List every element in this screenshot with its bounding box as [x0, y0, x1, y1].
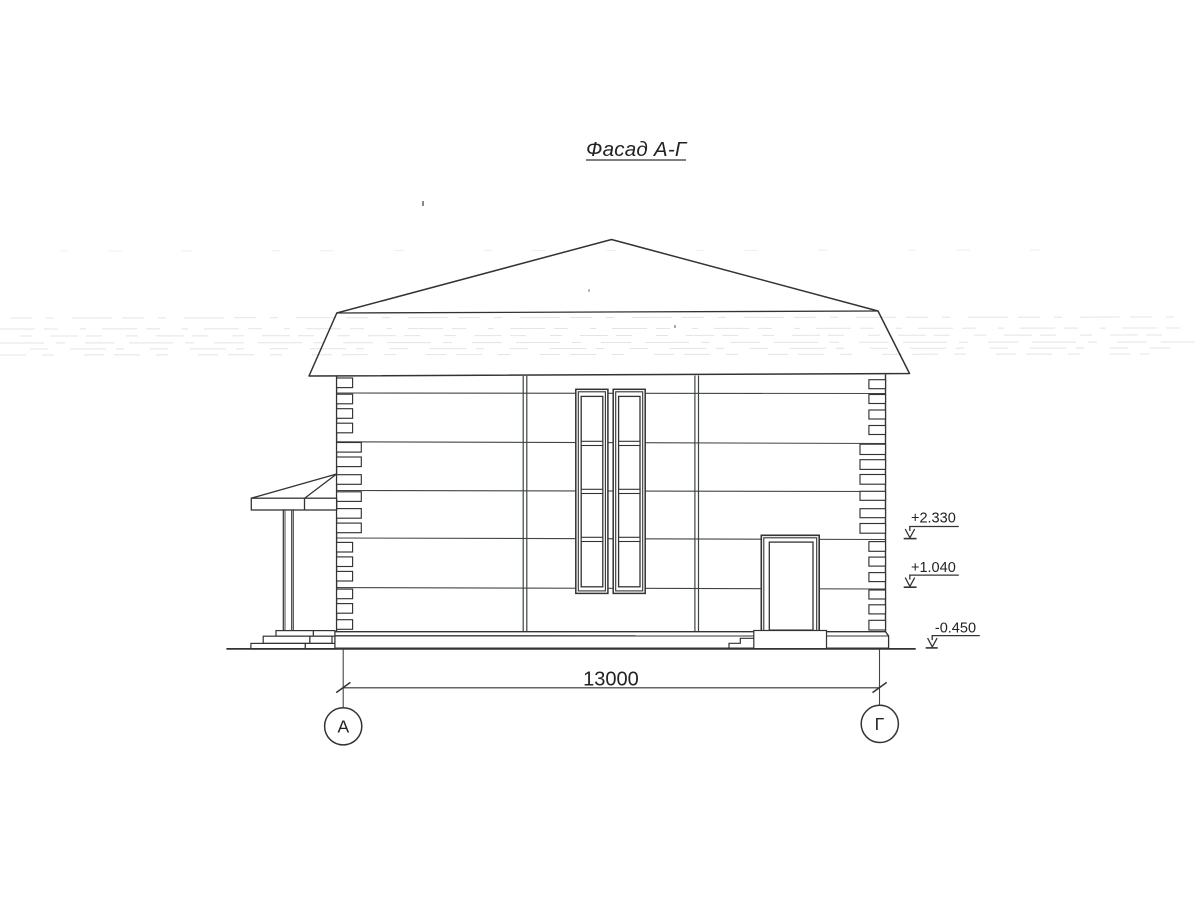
svg-text:А: А — [338, 717, 350, 737]
svg-text:-0.450: -0.450 — [935, 620, 976, 636]
svg-text:Г: Г — [875, 714, 885, 734]
svg-text:Фасад А-Г: Фасад А-Г — [586, 138, 688, 161]
svg-text:13000: 13000 — [583, 669, 639, 691]
svg-text:+2.330: +2.330 — [911, 511, 956, 527]
svg-text:+1.040: +1.040 — [911, 560, 956, 576]
